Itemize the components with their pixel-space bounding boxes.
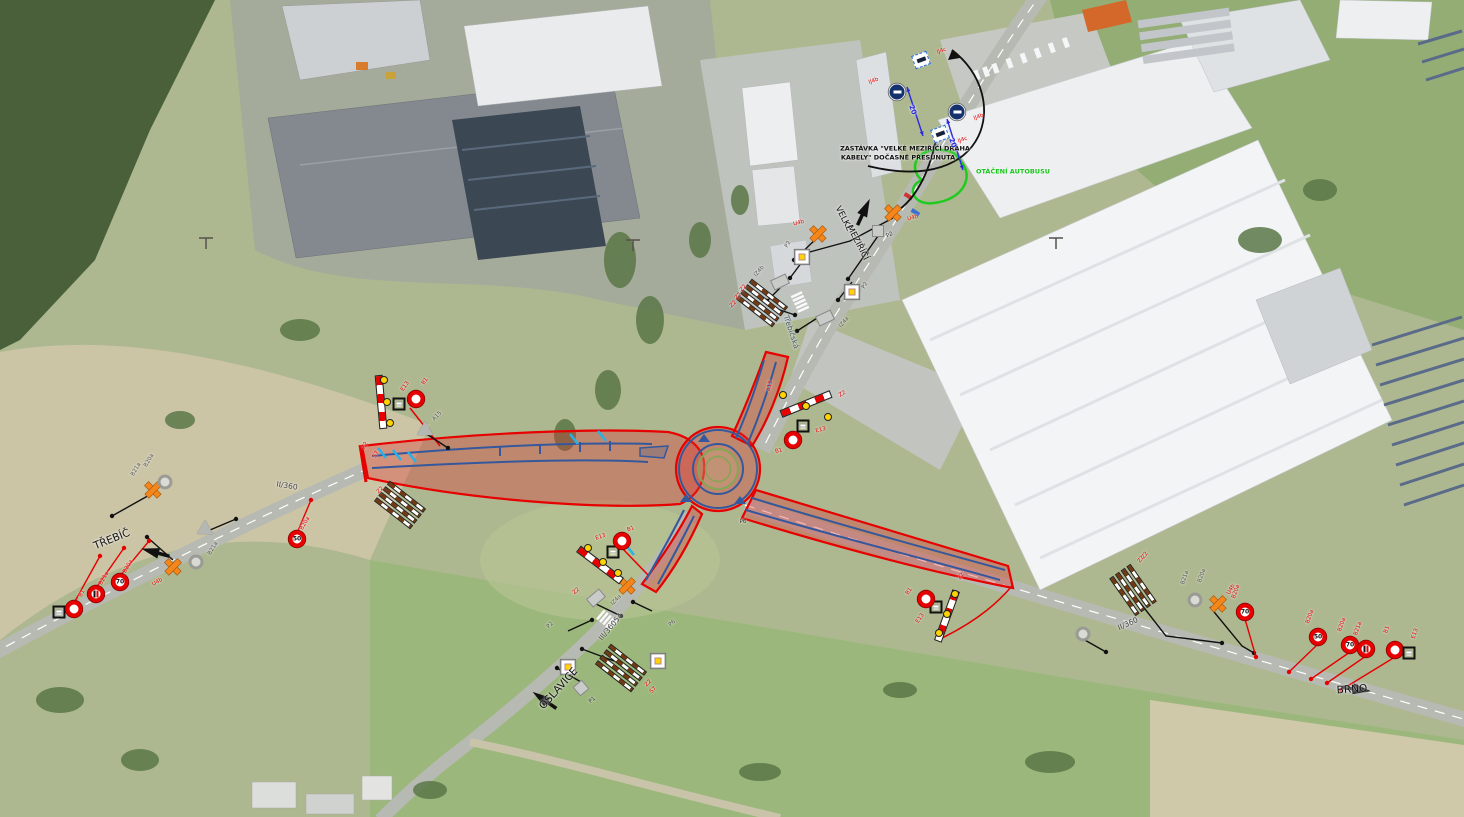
sign-code-label: IJ4c [936,48,947,57]
map-label: S7 [373,451,381,460]
sign-code-label: B1 [906,587,915,596]
map-label: OSLAVICE [538,666,581,712]
map-label: 20 [907,104,917,116]
sign-code-label: P6 [669,620,678,629]
sign-code-label: E13 [916,613,927,625]
map-label: TŘEBÍČ [92,528,131,552]
map-label: B20a [144,453,156,468]
map-label: Z2 [729,300,738,309]
sign-code-label: P2 [547,622,556,631]
sign-code-label: E13 [595,533,607,542]
sign-code-label: Z2 [376,486,385,495]
sign-code-label: Z2 [958,572,967,581]
sign-code-label: U4b [907,215,919,223]
sign-code-label: IJ4b [973,114,985,123]
sign-code-label: Z2 [739,284,748,293]
sign-code-label: B20a [123,559,135,574]
sign-code-label: B20a [1306,609,1316,624]
sign-code-label: B20a [1338,617,1348,632]
map-label: II/360 [276,480,298,491]
sign-code-label: B1 [627,526,636,534]
map-label: B21a [208,541,220,556]
sign-code-label: Z2 [572,587,581,596]
sign-code-label: E13 [1411,628,1420,640]
map-label: P2 [886,232,895,240]
sign-code-label: P2 [785,241,793,250]
map-label: KABELY" DOČASNĚ PŘESUNUTA [841,155,955,162]
sign-code-label: B21a [99,571,111,586]
map-label: II/360 [1117,616,1140,632]
sign-code-label: E13 [815,427,827,435]
traffic-plan-map: 7050507070 ZASTÁVKA "VELKÉ MEZIŘÍČÍ DRÁH… [0,0,1464,817]
map-label: B20a [1198,568,1208,583]
map-label: A15 [767,380,775,392]
map-label: BRNO [1336,683,1367,696]
sign-code-label: E13 [401,381,412,393]
sign-code-label: Z2 [1138,555,1147,564]
sign-code-label: A15 [432,411,444,423]
sign-code-label: B20a [300,516,312,531]
map-label: Z2 [734,292,743,301]
sign-code-label: U4b [793,220,805,228]
sign-code-label: B1 [1384,626,1392,635]
map-label: OTÁČENÍ AUTOBUSU [976,169,1050,176]
sign-code-label: U4b [152,578,164,589]
map-label: Třebíčská [782,314,800,349]
map-label: B21a [131,462,143,477]
map-label: P1 [589,697,598,706]
sign-code-label: IJ4b [868,78,880,87]
sign-code-label: P2 [862,282,870,291]
map-label: S7 [649,686,658,695]
sign-code-label: B1 [79,589,88,598]
map-label: P6 [740,520,747,526]
sign-code-label: Z2 [838,391,847,400]
map-label: III/36054 [597,612,624,642]
map-label: B21a [1181,570,1191,585]
text-labels-layer: ZASTÁVKA "VELKÉ MEZIŘÍČÍ DRÁHAKABELY" DO… [0,0,1464,817]
sign-code-label: B21a [1354,621,1364,636]
sign-code-label: IZ4b [754,265,766,278]
sign-code-label: IZ4a [839,316,851,329]
map-label: MEZIŘÍČÍ [844,224,869,262]
sign-code-label: B1 [775,448,784,455]
sign-code-label: Z2 [362,441,371,450]
sign-code-label: IZ4a [611,595,624,608]
sign-code-label: B1 [422,377,431,386]
